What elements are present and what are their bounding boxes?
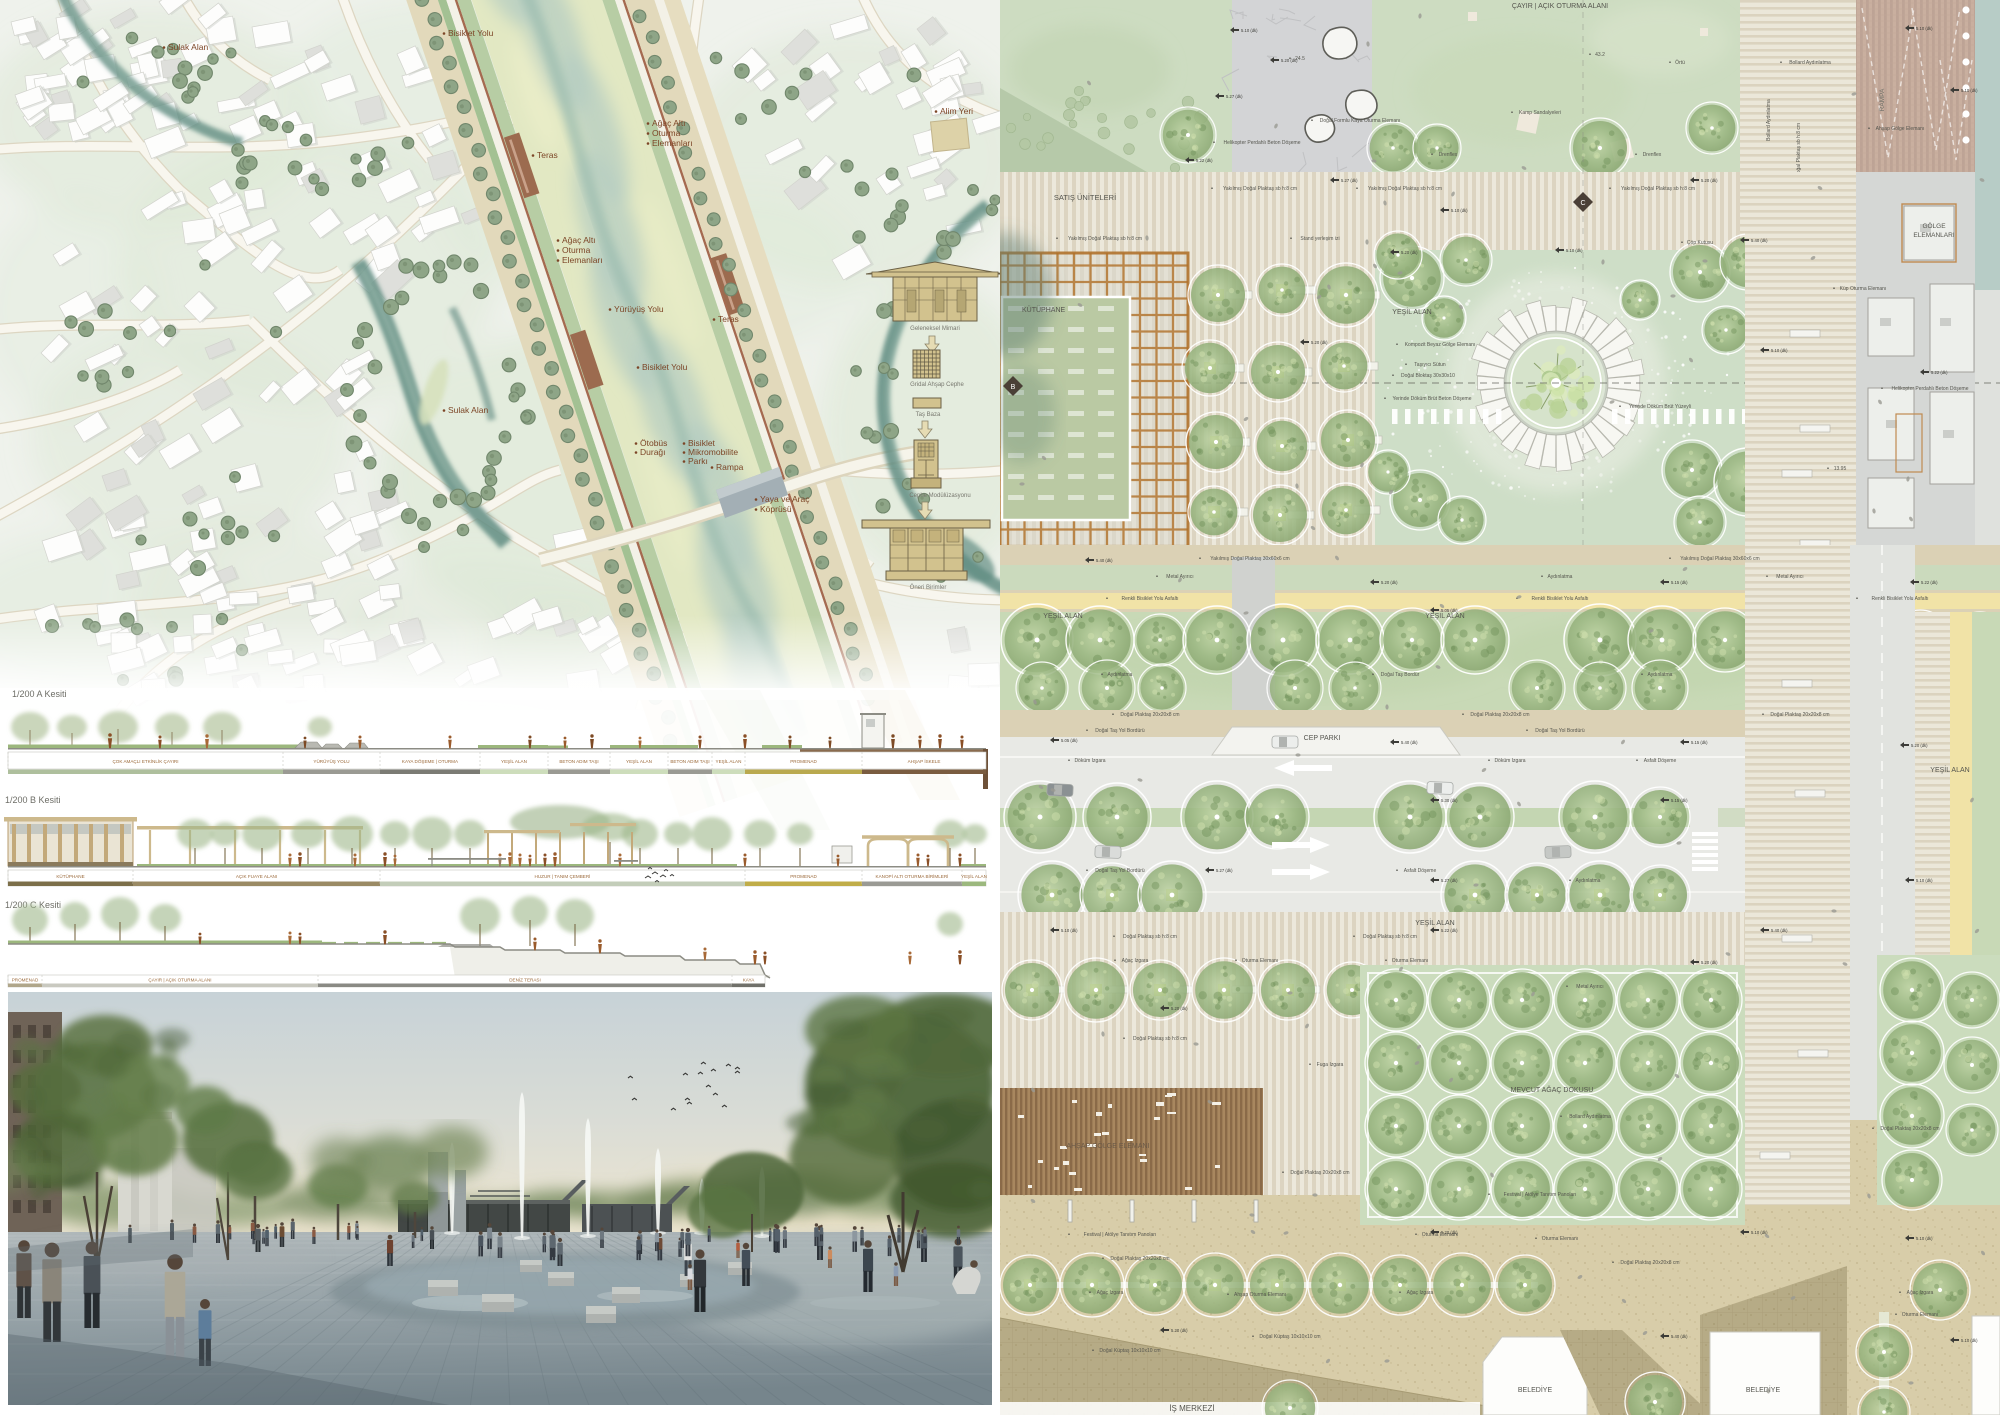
svg-text:Doğal Taş Yol Bordürü: Doğal Taş Yol Bordürü: [1095, 868, 1145, 874]
svg-text:5.10 (dk): 5.10 (dk): [1061, 928, 1078, 933]
svg-text:Stand yerleşim izi: Stand yerleşim izi: [1300, 236, 1339, 242]
svg-text:Bollard Aydınlatma: Bollard Aydınlatma: [1789, 60, 1831, 66]
svg-text:Renkli Bisiklet Yolu Asfaltı: Renkli Bisiklet Yolu Asfaltı: [1872, 596, 1929, 602]
svg-text:Ağaç Izgara: Ağaç Izgara: [1407, 1290, 1434, 1296]
svg-text:Metal Ayırıcı: Metal Ayırıcı: [1576, 984, 1603, 990]
svg-text:5.15 (dk): 5.15 (dk): [1691, 740, 1708, 745]
svg-text:Doğal Küptaş 10x10x10 cm: Doğal Küptaş 10x10x10 cm: [1099, 1348, 1160, 1354]
svg-text:KÜTÜPHANE: KÜTÜPHANE: [1022, 306, 1066, 314]
svg-text:Alim Yeri: Alim Yeri: [940, 106, 973, 116]
svg-text:Oturma Elemanı: Oturma Elemanı: [1542, 1236, 1578, 1242]
svg-text:Doğal Plaktaş 20x20x8 cm: Doğal Plaktaş 20x20x8 cm: [1880, 1126, 1939, 1132]
svg-text:Yakılmış Doğal Plaktaş sb h:8: Yakılmış Doğal Plaktaş sb h:8 cm: [1223, 186, 1297, 192]
svg-text:Örtü: Örtü: [1675, 59, 1685, 66]
svg-text:5.10 (dk): 5.10 (dk): [1961, 1338, 1978, 1343]
svg-text:Doğal Taş Yol Bordürü: Doğal Taş Yol Bordürü: [1095, 728, 1145, 734]
svg-text:5.20 (dk): 5.20 (dk): [1701, 960, 1718, 965]
svg-text:YEŞİL ALAN: YEŞİL ALAN: [626, 758, 652, 764]
svg-text:Yakılmış Doğal Plaktaş sb h:8: Yakılmış Doğal Plaktaş sb h:8 cm: [1068, 236, 1142, 242]
svg-text:RAMPA: RAMPA: [1879, 88, 1886, 111]
svg-text:PROMENAD: PROMENAD: [790, 874, 817, 879]
svg-text:İŞ MERKEZİ: İŞ MERKEZİ: [1169, 1404, 1214, 1413]
svg-text:5.10 (dk): 5.10 (dk): [1961, 88, 1978, 93]
svg-text:ÇOK AMAÇLI ETKİNLİK ÇAYIRI: ÇOK AMAÇLI ETKİNLİK ÇAYIRI: [112, 758, 178, 764]
svg-text:ÇAYIR | AÇIK OTURMA ALANI: ÇAYIR | AÇIK OTURMA ALANI: [148, 978, 211, 983]
svg-text:5.22 (dk): 5.22 (dk): [1196, 158, 1213, 163]
svg-text:Cephe Modülüzasyonu: Cephe Modülüzasyonu: [909, 493, 970, 499]
svg-text:5.20 (dk): 5.20 (dk): [1441, 1230, 1458, 1235]
svg-text:5.20 (dk): 5.20 (dk): [1171, 1328, 1188, 1333]
svg-text:5.15 (dk): 5.15 (dk): [1671, 580, 1688, 585]
svg-text:Renkli Bisiklet Yolu Asfaltı: Renkli Bisiklet Yolu Asfaltı: [1122, 596, 1179, 602]
svg-text:Gridal Ahşap Cephe: Gridal Ahşap Cephe: [910, 382, 964, 388]
svg-text:Oturma Elemanı: Oturma Elemanı: [1902, 1312, 1938, 1318]
svg-text:Doğal Plaktaş sb h:8 cm: Doğal Plaktaş sb h:8 cm: [1123, 934, 1177, 940]
svg-text:5.05 (dk): 5.05 (dk): [1441, 608, 1458, 613]
svg-text:Döküm Izgara: Döküm Izgara: [1494, 758, 1525, 764]
svg-text:Oturma: Oturma: [652, 128, 681, 138]
svg-text:Asfalt Döşeme: Asfalt Döşeme: [1644, 758, 1677, 764]
svg-text:Bisiklet Yolu: Bisiklet Yolu: [642, 362, 688, 372]
svg-text:BELEDİYE: BELEDİYE: [1518, 1385, 1553, 1394]
svg-text:Aydınlatma: Aydınlatma: [1108, 672, 1133, 678]
svg-text:GÖLGE: GÖLGE: [1922, 222, 1946, 230]
svg-text:Ahşap Oturma Elemanı: Ahşap Oturma Elemanı: [1234, 1292, 1286, 1298]
svg-text:Festival | Atölye Tanıtım Pano: Festival | Atölye Tanıtım Panoları: [1084, 1232, 1157, 1238]
svg-text:Rampa: Rampa: [716, 462, 744, 472]
svg-text:Elemanları: Elemanları: [652, 138, 693, 148]
svg-text:13.95: 13.95: [1834, 466, 1847, 472]
svg-text:Oturma Elemanı: Oturma Elemanı: [1242, 958, 1278, 964]
svg-text:Doğal Plaktaş 20x20x8 cm: Doğal Plaktaş 20x20x8 cm: [1470, 712, 1529, 718]
svg-text:Doğal Plaktaş sb h:8 cm: Doğal Plaktaş sb h:8 cm: [1363, 934, 1417, 940]
svg-text:Ağaç Izgara: Ağaç Izgara: [1907, 1290, 1934, 1296]
svg-text:Bollard Aydınlatma: Bollard Aydınlatma: [1569, 1114, 1611, 1120]
svg-text:5.20 (dk): 5.20 (dk): [1701, 178, 1718, 183]
svg-text:5.10 (dk): 5.10 (dk): [1241, 28, 1258, 33]
svg-text:Ağaç Izgara: Ağaç Izgara: [1122, 958, 1149, 964]
svg-text:Bisiklet Yolu: Bisiklet Yolu: [448, 28, 494, 38]
svg-text:5.20 (dk): 5.20 (dk): [1171, 1006, 1188, 1011]
svg-text:Doğal Taş Yol Bordürü: Doğal Taş Yol Bordürü: [1535, 728, 1585, 734]
svg-text:5.05 (dk): 5.05 (dk): [1061, 738, 1078, 743]
svg-text:Küp Oturma Elemanı: Küp Oturma Elemanı: [1840, 286, 1887, 292]
svg-text:Köprüsü: Köprüsü: [760, 504, 792, 514]
svg-text:ELEMANLARI: ELEMANLARI: [1913, 232, 1954, 239]
svg-text:Bollard Aydınlatma: Bollard Aydınlatma: [1766, 99, 1772, 141]
svg-text:Aydınlatma: Aydınlatma: [1548, 574, 1573, 580]
svg-text:AHŞAP GÖLGE ELEMANI: AHŞAP GÖLGE ELEMANI: [1066, 1142, 1149, 1150]
svg-text:Yerinde Döküm Brüt Yüzeyli: Yerinde Döküm Brüt Yüzeyli: [1629, 404, 1691, 410]
svg-text:BETON ADIM TAŞI: BETON ADIM TAŞI: [559, 759, 598, 764]
svg-text:Ağaç Altı: Ağaç Altı: [562, 235, 596, 245]
svg-text:Helikopter Perdahlı Beton Döşe: Helikopter Perdahlı Beton Döşeme: [1892, 386, 1969, 392]
svg-text:Doğal Plaktaş 20x20x8 cm: Doğal Plaktaş 20x20x8 cm: [1620, 1260, 1679, 1266]
svg-text:Renkli Bisiklet Yolu Asfaltı: Renkli Bisiklet Yolu Asfaltı: [1532, 596, 1589, 602]
svg-text:Parkı: Parkı: [688, 456, 708, 466]
svg-text:5.10 (dk): 5.10 (dk): [1566, 248, 1583, 253]
svg-text:Drenflex: Drenflex: [1439, 152, 1458, 158]
svg-text:5.27 (dk): 5.27 (dk): [1441, 878, 1458, 883]
svg-text:5.40 (dk): 5.40 (dk): [1401, 740, 1418, 745]
svg-text:1/200 A Kesiti: 1/200 A Kesiti: [12, 689, 67, 699]
svg-text:5.20 (dk): 5.20 (dk): [1281, 58, 1298, 63]
svg-text:YEŞİL ALAN: YEŞİL ALAN: [1392, 307, 1431, 316]
svg-text:5.20 (dk): 5.20 (dk): [1311, 340, 1328, 345]
svg-text:ÇAYIR | AÇIK OTURMA ALANI: ÇAYIR | AÇIK OTURMA ALANI: [1512, 3, 1608, 10]
svg-text:5.10 (dk): 5.10 (dk): [1771, 348, 1788, 353]
svg-text:Ağaç Izgara: Ağaç Izgara: [1097, 1290, 1124, 1296]
svg-text:Aydınlatma: Aydınlatma: [1648, 672, 1673, 678]
svg-text:YEŞİL ALAN: YEŞİL ALAN: [1415, 918, 1454, 927]
svg-text:Kamp Sandalyeleri: Kamp Sandalyeleri: [1519, 110, 1561, 116]
svg-text:AHŞAP İSKELE: AHŞAP İSKELE: [908, 758, 941, 764]
svg-text:YÜRÜYÜŞ YOLU: YÜRÜYÜŞ YOLU: [313, 758, 349, 764]
svg-text:5.27 (dk): 5.27 (dk): [1226, 94, 1243, 99]
svg-text:5.10 (dk): 5.10 (dk): [1916, 1236, 1933, 1241]
svg-text:YEŞİL ALAN: YEŞİL ALAN: [1043, 611, 1082, 620]
svg-text:KAYA: KAYA: [743, 978, 756, 983]
svg-text:Ahşap Gölge Elemanı: Ahşap Gölge Elemanı: [1876, 126, 1925, 132]
svg-text:KAYA DÖŞEME | OTURMA: KAYA DÖŞEME | OTURMA: [402, 758, 459, 764]
svg-text:Teras: Teras: [718, 314, 739, 324]
svg-text:Ağaç Altı: Ağaç Altı: [652, 118, 686, 128]
svg-text:Elemanları: Elemanları: [562, 255, 603, 265]
svg-text:Doğal Formlu Kaya Oturma Elema: Doğal Formlu Kaya Oturma Elemanı: [1320, 118, 1401, 124]
svg-text:5.22 (dk): 5.22 (dk): [1921, 580, 1938, 585]
svg-text:5.22 (dk): 5.22 (dk): [1931, 370, 1948, 375]
svg-text:5.10 (dk): 5.10 (dk): [1916, 26, 1933, 31]
svg-text:Yakılmış Doğal Plaktaş 30x60x6: Yakılmış Doğal Plaktaş 30x60x6 cm: [1210, 556, 1289, 562]
svg-text:PROMENAD: PROMENAD: [790, 759, 817, 764]
svg-text:MEVCUT AĞAÇ DOKUSU: MEVCUT AĞAÇ DOKUSU: [1511, 1085, 1594, 1094]
svg-text:Öneri Birimler: Öneri Birimler: [910, 584, 947, 591]
svg-text:BETON ADIM TAŞI: BETON ADIM TAŞI: [670, 759, 709, 764]
svg-text:SATIŞ ÜNİTELERİ: SATIŞ ÜNİTELERİ: [1054, 193, 1116, 202]
svg-text:AÇIK FUAYE ALANI: AÇIK FUAYE ALANI: [236, 874, 277, 879]
svg-text:5.10 (dk): 5.10 (dk): [1451, 208, 1468, 213]
svg-text:Yakılmış Doğal Plaktaş sb h:8: Yakılmış Doğal Plaktaş sb h:8 cm: [1368, 186, 1442, 192]
svg-text:Yürüyüş Yolu: Yürüyüş Yolu: [614, 304, 664, 314]
svg-text:5.40 (dk): 5.40 (dk): [1771, 928, 1788, 933]
svg-text:Çöp Kutusu: Çöp Kutusu: [1687, 240, 1713, 246]
svg-text:Oturma Elemanı: Oturma Elemanı: [1392, 958, 1428, 964]
svg-text:5.30 (dk): 5.30 (dk): [1441, 798, 1458, 803]
svg-text:Doğal Küptaş 10x10x10 cm: Doğal Küptaş 10x10x10 cm: [1259, 1334, 1320, 1340]
svg-text:Sulak Alan: Sulak Alan: [168, 42, 208, 52]
svg-text:5.40 (dk): 5.40 (dk): [1096, 558, 1113, 563]
svg-text:BELEDİYE: BELEDİYE: [1746, 1385, 1781, 1394]
svg-text:43.2: 43.2: [1595, 52, 1605, 58]
svg-text:Doğal Plaktaş 20x20x8 cm: Doğal Plaktaş 20x20x8 cm: [1120, 712, 1179, 718]
svg-text:Doğal Plaktaş sb h:8 cm: Doğal Plaktaş sb h:8 cm: [1133, 1036, 1187, 1042]
svg-text:1/200 B Kesiti: 1/200 B Kesiti: [5, 795, 61, 805]
svg-text:Durağı: Durağı: [640, 447, 666, 457]
svg-text:Sulak Alan: Sulak Alan: [448, 405, 488, 415]
svg-text:YEŞİL ALAN: YEŞİL ALAN: [501, 758, 527, 764]
svg-text:Geleneksel Mimari: Geleneksel Mimari: [910, 326, 960, 332]
svg-text:Teras: Teras: [537, 150, 558, 160]
svg-text:Kompozit Beyaz Gölge Elemanı: Kompozit Beyaz Gölge Elemanı: [1405, 342, 1476, 348]
svg-text:Taş Baza: Taş Baza: [916, 412, 941, 418]
svg-text:YEŞİL ALAN: YEŞİL ALAN: [1930, 765, 1969, 774]
svg-text:Doğal Bloktaş 30x30x10: Doğal Bloktaş 30x30x10: [1401, 373, 1455, 379]
svg-text:Yaya ve Araç: Yaya ve Araç: [760, 494, 810, 504]
svg-text:YEŞİL ALAN: YEŞİL ALAN: [716, 758, 742, 764]
svg-text:5.40 (dk): 5.40 (dk): [1671, 1334, 1688, 1339]
svg-text:PROMENAD: PROMENAD: [12, 978, 39, 983]
svg-text:Doğal Plaktaş 20x20x8 cm: Doğal Plaktaş 20x20x8 cm: [1290, 1170, 1349, 1176]
svg-text:Doğal Plaktaş 20x20x8 cm: Doğal Plaktaş 20x20x8 cm: [1770, 712, 1829, 718]
svg-text:KANOPİ ALTI OTURMA BİRİMLERİ: KANOPİ ALTI OTURMA BİRİMLERİ: [876, 873, 949, 879]
svg-text:B: B: [1011, 384, 1016, 391]
svg-text:Aydınlatma: Aydınlatma: [1576, 878, 1601, 884]
svg-text:Doğal Plaktaş 20x20x8 cm: Doğal Plaktaş 20x20x8 cm: [1110, 1256, 1169, 1262]
svg-text:5.20 (dk): 5.20 (dk): [1401, 250, 1418, 255]
svg-text:Yerinde Döküm Brüt Beton Döşem: Yerinde Döküm Brüt Beton Döşeme: [1392, 396, 1471, 402]
svg-text:Helikopter Perdahlı Beton Döşe: Helikopter Perdahlı Beton Döşeme: [1224, 140, 1301, 146]
svg-text:CEP PARKI: CEP PARKI: [1304, 735, 1341, 742]
svg-text:HUZUR | TANIM ÇEMBERİ: HUZUR | TANIM ÇEMBERİ: [535, 873, 591, 879]
svg-text:Oturma: Oturma: [562, 245, 591, 255]
svg-text:Yakılmış Doğal Plaktaş 30x60x6: Yakılmış Doğal Plaktaş 30x60x6 cm: [1680, 556, 1759, 562]
svg-text:5.22 (dk): 5.22 (dk): [1441, 928, 1458, 933]
svg-text:Taşıyıcı Sütun: Taşıyıcı Sütun: [1414, 362, 1446, 368]
svg-text:Festival | Atölye Tanıtım Pano: Festival | Atölye Tanıtım Panoları: [1504, 1192, 1577, 1198]
svg-text:C: C: [1580, 200, 1585, 207]
svg-text:KÜTÜPHANE: KÜTÜPHANE: [56, 873, 84, 879]
svg-text:Fuga Izgara: Fuga Izgara: [1317, 1062, 1344, 1068]
svg-text:Doğal Taş Bordür: Doğal Taş Bordür: [1381, 672, 1420, 678]
svg-text:Metal Ayırıcı: Metal Ayırıcı: [1776, 574, 1803, 580]
svg-text:5.20 (dk): 5.20 (dk): [1381, 580, 1398, 585]
svg-text:DENİZ TERASI: DENİZ TERASI: [509, 977, 541, 983]
svg-text:5.40 (dk): 5.40 (dk): [1751, 238, 1768, 243]
svg-text:YEŞİL ALAN: YEŞİL ALAN: [961, 873, 987, 879]
svg-text:5.20 (dk): 5.20 (dk): [1911, 743, 1928, 748]
svg-text:Yakılmış Doğal Plaktaş sb h:8: Yakılmış Doğal Plaktaş sb h:8 cm: [1621, 186, 1695, 192]
svg-text:5.27 (dk): 5.27 (dk): [1341, 178, 1358, 183]
svg-text:5.10 (dk): 5.10 (dk): [1916, 878, 1933, 883]
svg-text:Drenflex: Drenflex: [1643, 152, 1662, 158]
svg-text:Döküm Izgara: Döküm Izgara: [1074, 758, 1105, 764]
svg-text:5.27 (dk): 5.27 (dk): [1216, 868, 1233, 873]
svg-text:Asfalt Döşeme: Asfalt Döşeme: [1404, 868, 1437, 874]
svg-text:5.15 (dk): 5.15 (dk): [1671, 798, 1688, 803]
